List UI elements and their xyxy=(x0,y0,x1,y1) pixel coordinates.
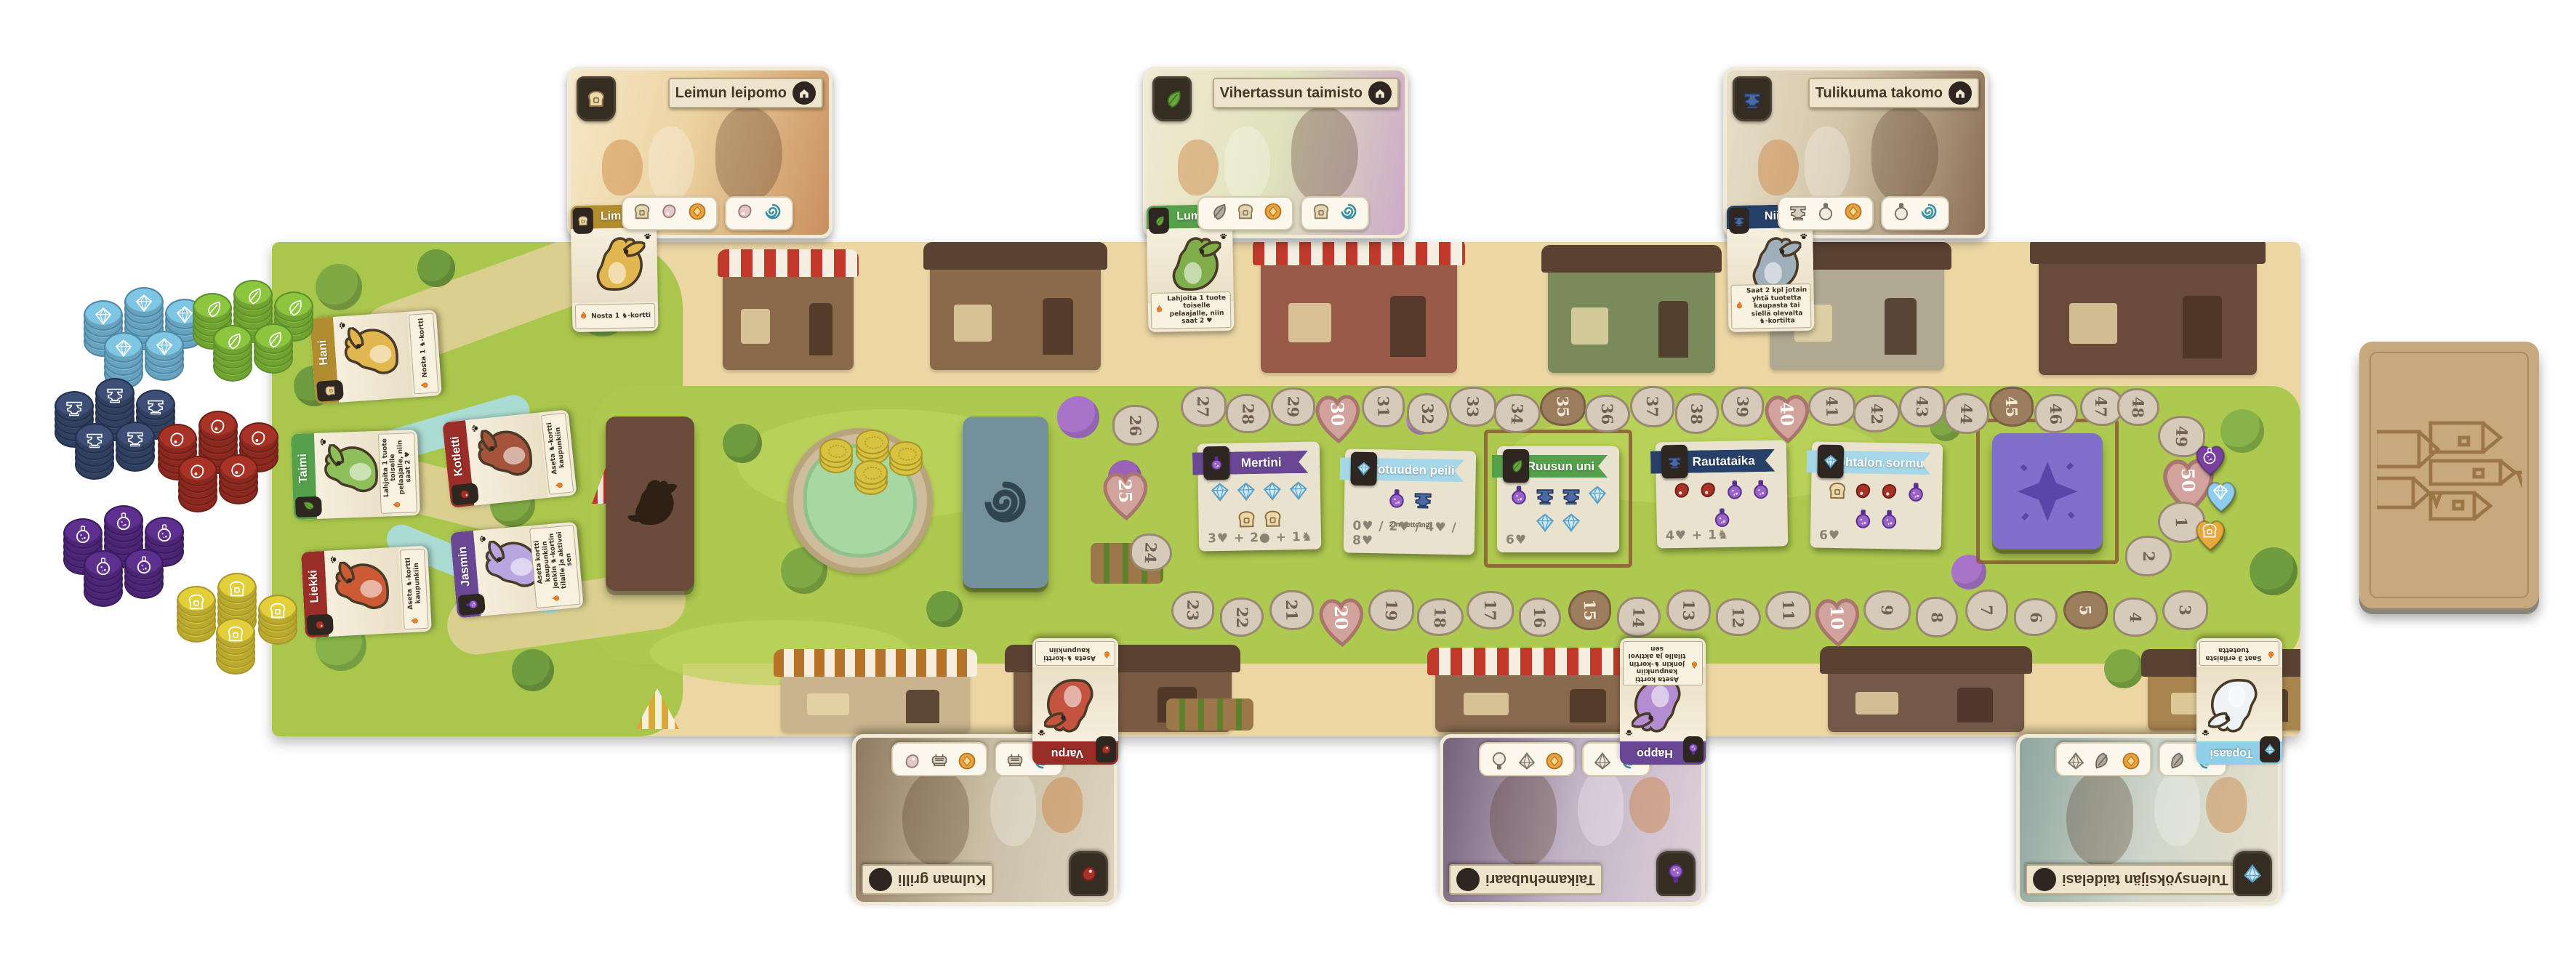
building-title: Vihertassun taimisto xyxy=(1220,85,1363,102)
bread-icon xyxy=(1235,508,1258,531)
bread-heart[interactable] xyxy=(2189,514,2231,552)
coin-icon xyxy=(957,747,977,771)
diamond-icon xyxy=(174,305,195,325)
anvil-icon xyxy=(1534,484,1556,510)
flame-icon xyxy=(551,593,561,603)
building-sign: Kulman grilli xyxy=(862,864,993,895)
dragon-blob xyxy=(2206,777,2247,833)
village-deck[interactable] xyxy=(2359,342,2539,608)
shop-area-bottom-2: TaikamehubaariHappo Aseta kortti kaupunk… xyxy=(1440,638,1716,907)
building-title: Tulensyöksijän taidelasi xyxy=(2062,872,2228,888)
dragon-card-taimi[interactable]: Taimi Lahjoita 1 tuote toiselle pelaajal… xyxy=(291,430,420,520)
potion-icon xyxy=(113,511,134,531)
bread-icon xyxy=(1826,480,1849,506)
paw-stamp xyxy=(476,533,491,545)
dragon-card-varpu[interactable]: Varpu Aseta ♞-kortti kaupunkiin xyxy=(1032,638,1118,765)
art-blob xyxy=(2066,770,2133,866)
ability-text: Aseta ♞-kortti kaupunkiin xyxy=(1039,645,1100,661)
building-sign: Tulikuuma takomo xyxy=(1808,78,1979,108)
ability-scroll: Aseta kortti kaupunkiin jonkin ♞-kortin … xyxy=(1623,641,1703,685)
token-stack[interactable] xyxy=(145,331,184,381)
meat-tokens[interactable] xyxy=(151,411,296,512)
art-blob xyxy=(2154,770,2201,846)
village-building xyxy=(2039,255,2257,375)
ability-text: Saat 2 kpl jotain yhtä tuotetta kaupasta… xyxy=(1746,286,1807,326)
art-blob xyxy=(1578,770,1624,846)
track-space-21: 21 xyxy=(1269,589,1315,630)
art-blob xyxy=(990,770,1037,846)
diamond-icon xyxy=(1823,454,1839,470)
potion-icon xyxy=(1665,863,1687,885)
player-card-liekki[interactable]: Liekki Aseta ♞-kortti kaupunkiin xyxy=(300,545,435,639)
swirl-icon xyxy=(1919,201,1939,222)
track-space-8: 8 xyxy=(1915,596,1958,637)
diamond-icon xyxy=(1534,512,1556,534)
shop-area-bottom-1: Kulman grilliVarpu Aseta ♞-kortti kaupun… xyxy=(852,638,1128,907)
player-card-kotletti[interactable]: Kotletti Aseta ♞-kortti kaupunkiin xyxy=(441,409,580,510)
meat-icon xyxy=(188,462,208,482)
dragon-blob xyxy=(602,140,643,196)
coin-icon xyxy=(1843,201,1863,225)
flame-icon xyxy=(579,310,588,320)
goal-title: Kohtalon sormus xyxy=(1829,454,1930,470)
track-space-41: 41 xyxy=(1808,387,1856,426)
meat-icon xyxy=(902,747,922,771)
meat-icon xyxy=(167,430,188,450)
vegetable-garden xyxy=(1166,699,1253,730)
bread-icon xyxy=(225,624,246,644)
potion-icon xyxy=(73,524,93,544)
coin-icon xyxy=(2121,747,2141,771)
token-stack[interactable] xyxy=(219,454,258,504)
building-window xyxy=(2069,303,2117,344)
goal-title: Rautataika xyxy=(1693,454,1755,469)
leaf-icon xyxy=(222,331,243,351)
paw-icon xyxy=(2037,872,2052,887)
diamond-icon xyxy=(2211,483,2230,502)
ability-text: Aseta kortti kaupunkiin jonkin ♞-kortin … xyxy=(1626,644,1688,683)
star-deck[interactable] xyxy=(1992,433,2103,550)
meat-icon xyxy=(228,460,249,480)
track-space-27: 27 xyxy=(1181,387,1227,427)
bread-icon xyxy=(186,592,206,612)
meat-icon xyxy=(167,430,188,450)
tree xyxy=(2250,547,2298,595)
potion-icon xyxy=(1878,508,1901,531)
dragon-card-liekki[interactable]: Liekki Aseta ♞-kortti kaupunkiin xyxy=(301,546,432,638)
paw-stamp xyxy=(317,436,332,448)
track-space-5: 5 xyxy=(2063,589,2108,629)
flame-icon xyxy=(1155,305,1164,317)
paw-icon xyxy=(336,320,348,331)
paw-stamp xyxy=(2200,724,2211,738)
resource-shield xyxy=(1069,851,1108,896)
track-space-28: 28 xyxy=(1225,393,1271,433)
track-space-25: 25 xyxy=(1094,462,1157,520)
goal-badge xyxy=(1503,449,1529,483)
anvil-icon xyxy=(1741,88,1763,110)
dragon-name: Jasmin xyxy=(457,546,473,587)
goal-reward: 0♥ / 2♥ / 4♥ / 8♥ xyxy=(1352,519,1469,550)
leaf-icon xyxy=(1208,201,1228,225)
art-blob xyxy=(715,107,782,202)
meat-icon xyxy=(1879,480,1901,503)
paw-icon xyxy=(642,230,653,241)
diamond-icon xyxy=(1288,480,1310,502)
goal-title: Mertini xyxy=(1241,455,1282,470)
potion-icon xyxy=(1386,487,1408,510)
meat-icon xyxy=(1099,743,1112,756)
ability-text: Aseta kortti kaupunkiin jonkin ♞-kortin … xyxy=(532,528,576,592)
flame-icon xyxy=(420,380,432,390)
art-blob xyxy=(1224,126,1271,202)
paw-icon xyxy=(1036,728,1047,738)
coin-icon xyxy=(2121,751,2141,771)
paw-stamp xyxy=(1624,724,1634,738)
reward-strip-b xyxy=(1881,196,1949,230)
swirl-deck[interactable] xyxy=(963,416,1048,588)
meat-icon xyxy=(659,201,680,225)
goal-title: Totuuden peili xyxy=(1371,462,1455,478)
paw-icon xyxy=(317,436,329,448)
diamond-icon xyxy=(154,337,174,357)
gold-coin[interactable] xyxy=(819,438,853,463)
diamond-icon xyxy=(174,305,195,325)
goal-card[interactable]: Rautataika4♥ + 1♞ xyxy=(1656,440,1789,548)
village-building xyxy=(1828,665,2024,732)
meat-icon xyxy=(1672,480,1694,502)
leaf-icon xyxy=(263,329,284,350)
building-window xyxy=(1855,692,1898,715)
swirl-icon xyxy=(763,201,783,222)
building-title: Leimun leipomo xyxy=(675,85,787,102)
resource-badge xyxy=(1729,208,1750,234)
reward-strip-a xyxy=(622,196,718,230)
anvil-icon xyxy=(1412,488,1435,510)
leaf-icon xyxy=(243,286,263,306)
goal-card[interactable]: Ruusun uni6♥ xyxy=(1497,446,1619,552)
potion-icon xyxy=(1891,201,1911,225)
token-stack[interactable] xyxy=(178,456,217,512)
track-space-47: 47 xyxy=(2080,387,2123,426)
building-roof xyxy=(2030,242,2266,264)
token-stack[interactable] xyxy=(84,550,123,607)
bread-icon xyxy=(2200,521,2219,540)
diamond-icon xyxy=(134,293,154,313)
art-blob xyxy=(1871,107,1938,202)
dragon-deck[interactable] xyxy=(606,416,694,591)
meat-icon xyxy=(1879,480,1901,507)
track-space-48: 48 xyxy=(2117,387,2160,426)
ability-scroll: Lahjoita 1 tuote toiselle pelaajalle, ni… xyxy=(1151,291,1232,329)
paw-stamp xyxy=(1798,230,1809,245)
coin-icon xyxy=(1544,751,1565,771)
ability-scroll: Nosta 1 ♞-kortti xyxy=(409,313,439,394)
flame-icon xyxy=(393,500,402,510)
bush xyxy=(1057,396,1099,438)
potion-icon xyxy=(1905,481,1927,507)
bread-icon xyxy=(1311,201,1331,225)
shop-area-top-3: Tulikuuma takomoNiitti Saat 2 kpl jotain… xyxy=(1723,67,1999,336)
track-space-17: 17 xyxy=(1466,591,1514,629)
goal-cost-icons xyxy=(1504,484,1612,537)
diamond-icon xyxy=(113,338,134,358)
art-blob xyxy=(1291,107,1358,202)
potion-icon xyxy=(134,555,154,575)
flame-icon xyxy=(1102,650,1112,659)
shop-area-bottom-3: Tulensyöksijän taidelasiTopaasi Saat 3 e… xyxy=(2016,638,2292,907)
bread-icon xyxy=(225,624,246,644)
gold-coin[interactable] xyxy=(854,460,888,485)
anvil-icon xyxy=(105,384,125,404)
meat-icon xyxy=(1698,479,1720,505)
bread-tokens[interactable] xyxy=(171,573,316,675)
potion-icon xyxy=(1891,201,1911,222)
bread-icon xyxy=(632,201,652,222)
bread-icon xyxy=(1235,201,1256,222)
building-door xyxy=(1658,301,1688,358)
token-stack[interactable] xyxy=(258,595,297,645)
dragon-name: Happo xyxy=(1637,746,1673,760)
track-space-20: 20 xyxy=(1309,588,1373,647)
resource-badge xyxy=(451,483,479,506)
potion-icon xyxy=(134,555,154,575)
leaf-icon xyxy=(1161,88,1183,110)
resource-badge xyxy=(458,593,486,616)
goal-card[interactable]: Kohtalon sormus6♥ xyxy=(1810,441,1943,550)
player-card-jasmin[interactable]: Jasmin Aseta kortti kaupunkiin jonkin ♞-… xyxy=(449,521,587,619)
shop-area-top-1: Leimun leipomoLimppu Nosta 1 ♞-kortti xyxy=(567,67,843,336)
diamond-icon xyxy=(1235,480,1258,503)
token-stack[interactable] xyxy=(116,422,155,472)
goal-badge xyxy=(1817,445,1844,479)
potion-icon xyxy=(465,597,479,612)
goal-card[interactable]: Totuuden peili2:n setteinä0♥ / 2♥ / 4♥ /… xyxy=(1344,448,1476,555)
gold-coin[interactable] xyxy=(889,441,923,466)
reward-strip-b xyxy=(891,742,987,776)
potion-icon xyxy=(1489,751,1509,771)
track-space-12: 12 xyxy=(1716,598,1761,636)
bread-icon xyxy=(323,384,337,398)
building-title: Taikamehubaari xyxy=(1485,872,1595,888)
diamond-icon xyxy=(93,306,113,326)
potion-icon xyxy=(1508,484,1530,510)
tree xyxy=(723,424,762,463)
bread-icon xyxy=(227,579,247,599)
star-icon xyxy=(2013,457,2082,526)
meat-icon xyxy=(1672,480,1694,506)
potion-icon xyxy=(1508,484,1530,506)
flame-icon xyxy=(551,593,564,603)
track-space-10: 10 xyxy=(1806,588,1869,647)
resource-badge xyxy=(316,379,344,401)
anvil-icon xyxy=(1733,214,1746,228)
coin-icon xyxy=(1843,201,1863,222)
potion-icon xyxy=(1687,743,1700,756)
swirl-icon xyxy=(763,201,783,225)
paw-badge xyxy=(2033,868,2056,891)
coin-icon xyxy=(687,201,707,225)
potion-icon xyxy=(1489,747,1509,771)
dragon-name: Topaasi xyxy=(2210,746,2252,760)
gold-coin[interactable] xyxy=(856,430,889,454)
track-space-37: 37 xyxy=(1630,386,1674,427)
building-roof xyxy=(923,242,1108,270)
coin-icon xyxy=(687,201,707,222)
reward-strip-a xyxy=(1197,196,1293,230)
anvil-icon xyxy=(1560,484,1582,506)
grill-icon xyxy=(1005,751,1025,771)
ability-text: Saat 3 erilaista tuotetta xyxy=(2203,645,2264,661)
goal-reward: 6♥ xyxy=(1819,528,1935,545)
village-building xyxy=(1548,264,1715,373)
diamond-icon xyxy=(1592,747,1613,771)
diamond-icon xyxy=(1592,751,1613,771)
paw-stamp xyxy=(1218,230,1229,245)
track-space-31: 31 xyxy=(1361,385,1405,427)
art-blob xyxy=(1490,770,1557,866)
goal-reward: 3♥ + 2● + 1♞ xyxy=(1208,530,1315,547)
diamond-icon xyxy=(1586,484,1608,506)
reward-strips xyxy=(1197,196,1400,230)
resource-shield xyxy=(1656,851,1696,896)
goal-cost-icons xyxy=(1205,480,1314,535)
potion-icon xyxy=(1750,478,1773,504)
dragon-card-topaasi[interactable]: Topaasi Saat 3 erilaista tuotetta xyxy=(2196,638,2282,765)
swirl-icon xyxy=(1919,201,1939,225)
goal-cost-icons xyxy=(1664,478,1781,534)
token-stack[interactable] xyxy=(254,323,293,374)
building-sign: Leimun leipomo xyxy=(668,78,823,108)
dragon-card-happo[interactable]: Happo Aseta kortti kaupunkiin jonkin ♞-k… xyxy=(1620,638,1706,765)
anvil-icon xyxy=(1666,454,1682,470)
token-stack[interactable] xyxy=(213,325,252,382)
potion-icon xyxy=(1711,507,1733,529)
diamond-icon xyxy=(2242,863,2263,885)
tree xyxy=(926,591,963,627)
track-space-45: 45 xyxy=(1989,385,2034,427)
ability-scroll: Aseta ♞-kortti kaupunkiin xyxy=(1035,641,1115,666)
fountain xyxy=(787,428,933,573)
bread-icon xyxy=(186,592,206,612)
dragon-blob xyxy=(1178,140,1219,196)
paw-stamp xyxy=(1036,724,1047,738)
leaf-icon xyxy=(202,299,222,319)
diamond-icon xyxy=(93,306,113,326)
bread-icon xyxy=(268,600,288,621)
reward-strip-b xyxy=(2055,742,2151,776)
resource-badge xyxy=(573,208,594,234)
flame-icon xyxy=(409,616,420,626)
grill-icon xyxy=(929,751,950,771)
tree xyxy=(417,249,455,287)
art-blob xyxy=(902,770,969,866)
bread-icon xyxy=(1826,480,1849,502)
goal-cost-icons xyxy=(1818,480,1935,535)
resource-badge xyxy=(1096,736,1116,762)
diamond-heart[interactable] xyxy=(2200,475,2242,513)
grill-icon xyxy=(1005,747,1025,771)
anvil-icon xyxy=(125,427,145,448)
goal-card[interactable]: Mertini3♥ + 2● + 1♞ xyxy=(1197,442,1322,552)
flame-icon xyxy=(393,500,405,510)
bread-icon xyxy=(1235,201,1256,225)
anvil-icon xyxy=(1560,484,1582,510)
goal-reward: 4♥ + 1♞ xyxy=(1666,527,1782,544)
track-space-30: 30 xyxy=(1307,385,1370,443)
goal-cost-icons xyxy=(1352,487,1469,515)
token-stack[interactable] xyxy=(75,423,114,480)
player-card-taimi[interactable]: Taimi Lahjoita 1 tuote toiselle pelaajal… xyxy=(289,430,423,521)
leaf-icon xyxy=(243,286,263,306)
dragon-card-kotletti[interactable]: Kotletti Aseta ♞-kortti kaupunkiin xyxy=(442,409,577,508)
potion-icon xyxy=(93,556,113,576)
token-stack[interactable] xyxy=(124,549,164,599)
diamond-icon xyxy=(1517,751,1537,771)
goal-badge xyxy=(1350,452,1377,486)
bread-icon xyxy=(1311,201,1331,222)
building-roof xyxy=(1541,245,1722,273)
reward-strip-b xyxy=(1301,196,1369,230)
ability-scroll: Saat 2 kpl jotain yhtä tuotetta kaupasta… xyxy=(1730,283,1811,329)
potion-heart[interactable] xyxy=(2189,439,2231,477)
meat-icon xyxy=(902,751,922,771)
building-window xyxy=(1571,307,1608,345)
building-door xyxy=(1043,298,1073,355)
paw-icon xyxy=(476,533,488,544)
anvil-icon xyxy=(105,384,125,404)
bread-icon xyxy=(1261,507,1284,530)
token-stack[interactable] xyxy=(177,586,216,643)
diamond-icon xyxy=(1261,480,1284,506)
token-stack[interactable] xyxy=(216,618,255,675)
diamond-icon xyxy=(134,293,154,313)
paw-icon xyxy=(1624,728,1634,738)
diamond-icon xyxy=(1209,481,1232,507)
flame-icon xyxy=(1102,648,1112,660)
dragon-card-jasmin[interactable]: Jasmin Aseta kortti kaupunkiin jonkin ♞-… xyxy=(450,522,584,619)
card-back-castle-art xyxy=(2359,342,2539,608)
diamond-icon xyxy=(1586,484,1608,510)
diamond-icon xyxy=(1261,480,1284,502)
dragon-name: Varpu xyxy=(1051,746,1083,760)
flame-icon xyxy=(2266,650,2276,659)
potion-icon xyxy=(1724,478,1746,504)
flame-icon xyxy=(1735,301,1744,310)
potion-icon xyxy=(1815,201,1836,225)
building-sign: Vihertassun taimisto xyxy=(1213,78,1399,108)
coin-icon xyxy=(957,751,977,771)
tree xyxy=(512,649,554,691)
track-space-13: 13 xyxy=(1666,589,1712,631)
house-icon xyxy=(797,86,811,100)
anvil-icon xyxy=(145,395,166,416)
resource-shield xyxy=(1733,76,1772,121)
anvil-icon xyxy=(145,395,166,416)
leaf-tokens[interactable] xyxy=(185,280,331,382)
potion-icon xyxy=(1208,455,1224,471)
diamond-icon xyxy=(1288,480,1310,506)
leaf-icon xyxy=(1152,214,1165,228)
dragon-name: Kotletti xyxy=(449,435,466,477)
dragon-blob xyxy=(1042,777,1083,833)
meat-icon xyxy=(659,201,680,222)
resource-badge xyxy=(295,496,322,518)
diamond-icon xyxy=(1209,481,1232,504)
building-title: Tulikuuma takomo xyxy=(1815,85,1943,102)
track-space-11: 11 xyxy=(1765,590,1811,629)
potion-icon xyxy=(73,524,93,544)
